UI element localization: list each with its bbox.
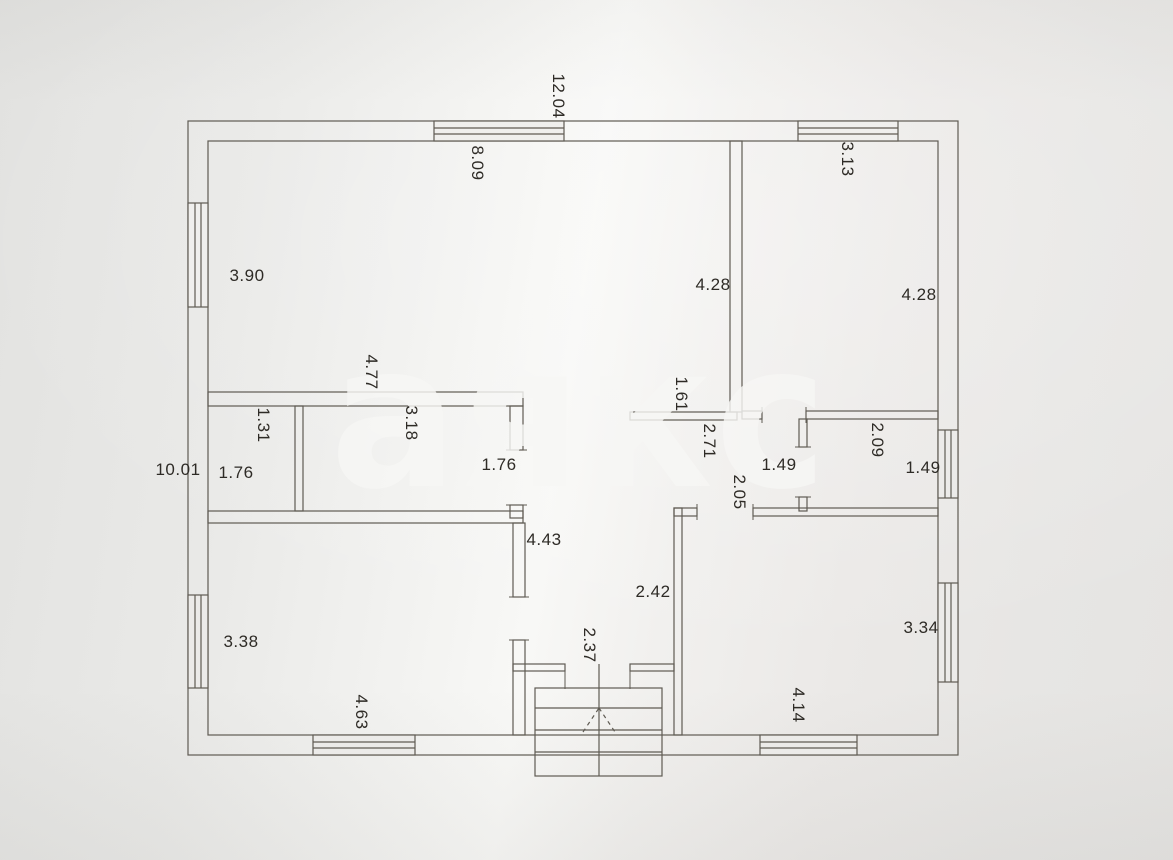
dimension-label: 2.05 bbox=[729, 474, 749, 509]
window-right-middle bbox=[938, 430, 958, 498]
window-bottom-right bbox=[760, 735, 857, 755]
window-right-lower bbox=[938, 583, 958, 682]
dimension-label: 3.90 bbox=[229, 266, 264, 286]
dimension-label: 2.71 bbox=[699, 423, 719, 458]
wall-bottomright-room-left bbox=[674, 508, 682, 735]
wall-vestibule-south-right bbox=[630, 664, 674, 671]
window-left-upper bbox=[188, 203, 208, 307]
dimension-label: 2.42 bbox=[635, 582, 670, 602]
dimension-label: 4.28 bbox=[901, 285, 936, 305]
dimension-label: 12.04 bbox=[548, 73, 568, 118]
window-left-lower bbox=[188, 595, 208, 688]
floor-plan-page: аякс 12.048.093.133.904.284.284.771.611.… bbox=[0, 0, 1173, 860]
dimension-label: 1.76 bbox=[218, 463, 253, 483]
window-top-right bbox=[798, 121, 898, 141]
window-bottom-left bbox=[313, 735, 415, 755]
dimension-label: 3.18 bbox=[401, 405, 421, 440]
window-top-left bbox=[434, 121, 564, 141]
dimension-label: 8.09 bbox=[467, 145, 487, 180]
dimension-label: 2.37 bbox=[579, 627, 599, 662]
dimension-label: 1.31 bbox=[253, 407, 273, 442]
wall-bottomleft-room-right-upper bbox=[513, 523, 525, 597]
dimension-label: 1.76 bbox=[481, 455, 516, 475]
dimension-label: 1.49 bbox=[905, 458, 940, 478]
dimension-label: 3.34 bbox=[903, 618, 938, 638]
dimension-label: 3.38 bbox=[223, 632, 258, 652]
dimension-label: 3.13 bbox=[837, 141, 857, 176]
wall-between-small-rooms bbox=[295, 406, 303, 511]
dimension-label: 4.28 bbox=[695, 275, 730, 295]
staircase bbox=[535, 664, 662, 776]
dimension-label: 2.09 bbox=[867, 422, 887, 457]
dimension-label: 4.63 bbox=[351, 694, 371, 729]
dimension-label: 4.43 bbox=[526, 530, 561, 550]
dimension-label: 1.49 bbox=[761, 455, 796, 475]
dimension-label: 1.61 bbox=[671, 376, 691, 411]
wall-vestibule-south-left bbox=[513, 664, 565, 671]
wall-bottomleft-room-right-lower bbox=[513, 640, 525, 735]
dimension-label: 10.01 bbox=[155, 460, 200, 480]
dimension-label: 4.77 bbox=[361, 354, 381, 389]
dimension-label: 4.14 bbox=[788, 687, 808, 722]
